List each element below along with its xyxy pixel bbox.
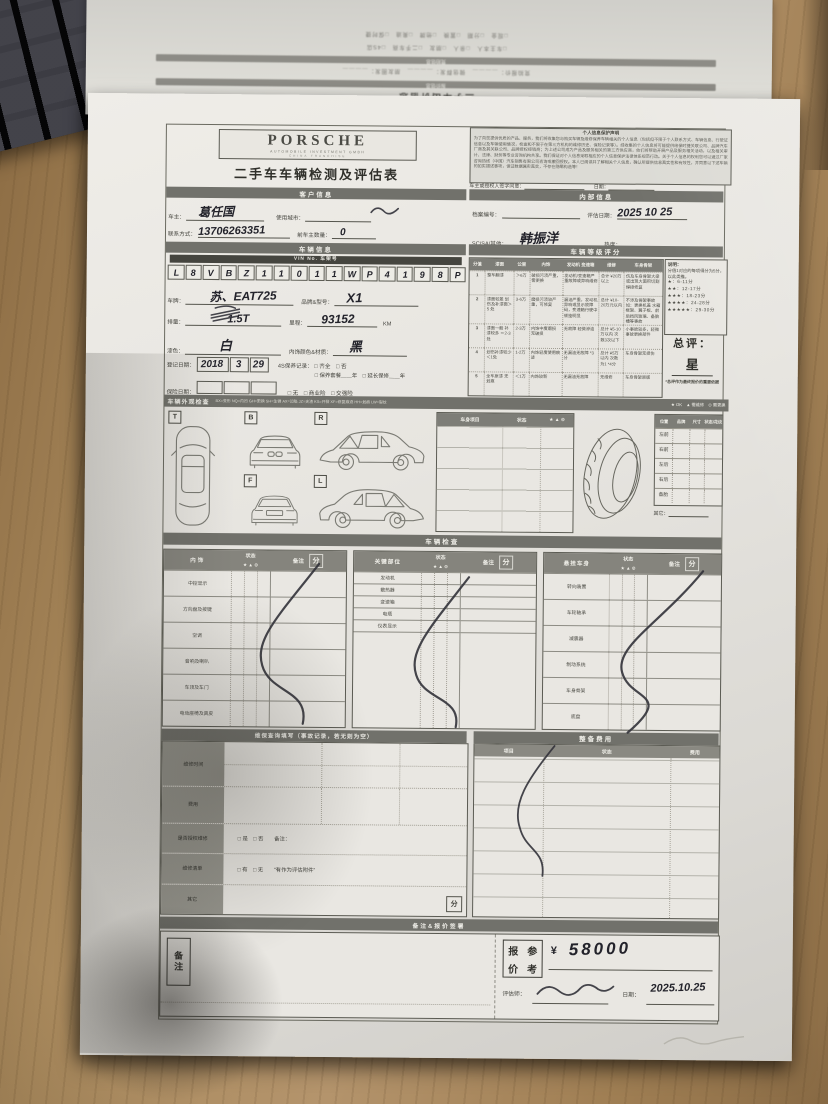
- maint-score-box: 分: [446, 896, 462, 912]
- body-item-table: 车身项目 状态 ★ ▲ ⊙: [435, 412, 574, 533]
- note-cell: [646, 601, 721, 627]
- rating-rows: 1 整车翻漆 ＞6万 破损污渍严重，需更换 发动机/变速箱严重故障或异响维修 总…: [469, 270, 663, 397]
- rating-cell: 2: [469, 294, 485, 323]
- vin-char: 8: [191, 267, 196, 277]
- check3-note-label: 备注: [669, 560, 680, 568]
- rating-cell: 车身骨架无损伤: [623, 349, 662, 373]
- check2-status-label: 状态: [421, 552, 459, 562]
- recondition-grid: [473, 756, 719, 918]
- rating-row: 3 漆面一般 补漆较多 ＝2-3处 2-3万 内饰中度磨损 无破损 无故障 轻微…: [469, 323, 662, 349]
- maint-options-2: □ 保养套餐＿＿年 □ 延长保修＿＿年: [315, 371, 465, 380]
- tire-row: 右前: [655, 443, 722, 459]
- check-item-label: 车轮轴承: [544, 600, 610, 626]
- status-star-cell: [609, 652, 622, 677]
- brand-name: PORSCHE: [220, 132, 416, 151]
- status-circle-cell: [256, 597, 269, 622]
- note-cell: [269, 650, 346, 676]
- mileage-value: 93152: [321, 312, 355, 327]
- exterior-legend: BX=变形 NQ=内凹 GH=更换 SH=生锈 AX=凹陷 JZ=夹渣 KS=开…: [216, 398, 387, 405]
- rating-cell: 内饰中度磨损 无破损: [529, 324, 562, 348]
- check-row: 车身骨架: [543, 677, 720, 705]
- tire-icon: [575, 418, 652, 531]
- check-table-keyparts: 关键部位 状态 ★ ▲ ⊙ 备注 分 发动机: [352, 550, 538, 730]
- rating-cell: 5: [469, 371, 485, 395]
- desk-edge-shadow: [802, 0, 828, 170]
- tire-position: 左前: [655, 429, 673, 443]
- check3-status-label: 状态: [610, 553, 647, 563]
- interior-value: 黑: [349, 336, 363, 355]
- recondition-table: 项目 状态 费用: [472, 743, 721, 919]
- pencil-mark: [660, 1026, 750, 1053]
- mileage-unit: KM: [383, 321, 391, 327]
- prev-owner-value: 0: [340, 227, 346, 238]
- flipped-page-fields: 竞拍报价：＿＿＿＿ 微信群发：＿＿＿＿ 朋友圈发：＿＿＿＿: [126, 65, 746, 79]
- rating-cell: 磨损污渍较严重，可修复: [529, 295, 562, 325]
- status-triangle-cell: [621, 705, 634, 730]
- tire-position: 备胎: [655, 489, 673, 503]
- check-row: 转向装置: [544, 573, 721, 601]
- overall-label: 总评：: [664, 335, 721, 351]
- footer-date-value: 2025.10.25: [650, 981, 705, 994]
- tire-other-label: 其它：: [654, 511, 669, 517]
- maint-row-cost: 费用: [162, 787, 224, 823]
- check-item-label: 空调: [163, 623, 231, 649]
- quote-char: 考: [527, 960, 537, 975]
- tire-row: 备胎: [655, 488, 722, 504]
- check-row: 方向盘及按键: [164, 596, 346, 624]
- photo-of-inspection-form: 二手车出价信息 报价信息 竞拍报价：＿＿＿＿ 微信群发：＿＿＿＿ 朋友圈发：＿＿…: [0, 0, 828, 1104]
- file-number-label: 档案编号：: [472, 212, 500, 218]
- status-circle-cell: [255, 701, 268, 726]
- section-internal-info: 内部信息: [469, 189, 723, 202]
- reg-month: 3: [236, 359, 242, 370]
- vin-header: VIN No. 车架号: [170, 255, 462, 266]
- tire-brand-cell: [672, 459, 689, 473]
- status-triangle-cell: [434, 585, 447, 596]
- maint-row-other: 其它: [161, 884, 223, 914]
- maint-row-time: 维修时间: [162, 742, 224, 787]
- city-label: 使用城市：: [276, 216, 304, 222]
- status-triangle-cell: [244, 597, 257, 622]
- check3-rows: 转向装置 车轮轴承: [543, 573, 721, 731]
- status-triangle-cell: [243, 649, 256, 674]
- prev-owner-label: 前车主数量：: [297, 233, 331, 239]
- interior-label: 内饰颜色&材质：: [289, 350, 332, 356]
- status-star-cell: [421, 597, 434, 608]
- rating-cell: 总计 ¥5万以内 次数为1 *4分: [598, 348, 623, 372]
- check1-rows: 中控显示 方向盘及按键: [163, 570, 346, 728]
- model-label: 品牌&型号：: [301, 300, 333, 306]
- vin-char: 4: [384, 269, 389, 279]
- check-row: 车轮轴承: [544, 599, 721, 627]
- check-table-interior: 内饰 状态 ★ ▲ ⊙ 备注 分 中控显示: [162, 549, 348, 729]
- eval-date-value: 2025 10 25: [617, 206, 672, 219]
- rating-cell: 发动机/变速箱严重故障或异响维修: [562, 271, 599, 295]
- overall-value: 星: [672, 351, 713, 376]
- tire-position: 左后: [655, 459, 673, 473]
- rating-cell: 总计 ¥20万以上: [599, 271, 624, 295]
- note-cell: [646, 627, 721, 653]
- vin-char: 9: [420, 269, 425, 279]
- tire-status-cell: [704, 489, 722, 503]
- car-side-view-right-icon: [314, 423, 430, 474]
- status-star-cell: [421, 585, 434, 596]
- check-item-label: 散热器: [354, 584, 421, 596]
- vin-char: L: [173, 267, 179, 277]
- tire-status-cell: [704, 474, 722, 488]
- quote-char: 价: [508, 960, 518, 975]
- status-star-cell: [609, 600, 622, 625]
- tire-col-brand: 品牌: [673, 419, 690, 425]
- tire-row: 左前: [655, 428, 722, 444]
- note-cell: [646, 575, 721, 601]
- note-cell: [459, 573, 536, 585]
- check2-rows: 发动机 散热器: [354, 571, 537, 632]
- body-col-status: 状态: [503, 417, 541, 424]
- footer-date-label: 日期：: [622, 990, 639, 999]
- rating-col-repair: 维修: [599, 262, 624, 268]
- status-circle-cell: [256, 675, 269, 700]
- paint-label: 漆色：: [167, 349, 184, 355]
- note-cell: [459, 621, 536, 633]
- status-circle-cell: [257, 571, 270, 596]
- notes-box: 备注: [166, 938, 190, 986]
- eval-date-label: 评估日期：: [587, 213, 615, 219]
- tire-size-cell: [689, 444, 704, 458]
- status-triangle-cell: [621, 653, 634, 678]
- rating-row: 2 漆面较差 划伤及补漆面＞5 处 3-6万 磨损污渍较严重，可修复 漏油严重，…: [469, 294, 662, 325]
- rating-cell: 全车原漆 无划痕: [484, 371, 513, 395]
- check-item-label: 方向盘及按键: [164, 597, 232, 623]
- tire-brand-cell: [672, 474, 689, 488]
- rating-legend-box: 说明： 分值1对应的每项得分为5分，以此类推。 ★：6-11分★★：12-17分…: [664, 259, 728, 336]
- rating-row: 4 划伤补漆较少 ＜1处 1-2万 内饰轻度使用痕迹 无漏油无故障 *3分 总计…: [469, 347, 662, 373]
- vin-char: 1: [279, 268, 284, 278]
- rating-cell: 无故障 轻微渗油: [562, 324, 599, 348]
- section-vehicle-info: 车辆信息: [166, 242, 466, 256]
- body-col-item: 车身项目: [437, 416, 502, 424]
- status-triangle-cell: [434, 609, 447, 620]
- currency-symbol: ¥: [551, 945, 557, 957]
- porsche-logo: PORSCHE AUTOMOBILE INVESTMENT GMBH CHINA…: [219, 129, 417, 161]
- owner-label: 车主：: [168, 215, 185, 221]
- tire-position: 右前: [655, 444, 673, 458]
- notes-underline: [160, 1002, 490, 1006]
- check2-status-icons: ★ ▲ ⊙: [421, 562, 459, 572]
- check1-title: 内饰: [164, 550, 232, 571]
- status-triangle-cell: [243, 623, 256, 648]
- tire-other: 其它：: [654, 508, 721, 518]
- check2-score-box: 分: [499, 556, 513, 570]
- check-row: 车顶及车门: [163, 674, 345, 702]
- rating-cell: 3: [469, 323, 485, 347]
- tire-size-cell: [689, 474, 704, 488]
- check2-title: 关键部位: [354, 551, 422, 572]
- tire-brand-cell: [672, 489, 689, 503]
- vin-char: B: [225, 268, 232, 278]
- vin-char: 1: [261, 268, 266, 278]
- form-page: PORSCHE AUTOMOBILE INVESTMENT GMBH CHINA…: [80, 93, 800, 1061]
- check-row: 音响及喇叭: [163, 648, 345, 676]
- tire-col-size: 尺寸: [689, 419, 704, 425]
- status-circle-cell: [447, 585, 460, 596]
- reg-date-label: 登记日期：: [167, 363, 195, 369]
- check3-score-box: 分: [685, 557, 699, 571]
- maint-label: 4S保养记录：: [278, 364, 313, 370]
- tire-brand-cell: [672, 444, 689, 458]
- rating-cell: 漏油严重，发动机异响或显示故障码，变速箱行驶中顿挫明显: [562, 295, 599, 325]
- check-row: 空调: [163, 622, 345, 650]
- rating-col-engine: 发动机 变速箱: [562, 262, 599, 268]
- status-star-cell: [230, 649, 243, 674]
- check1-status-icons: ★ ▲ ⊙: [231, 560, 269, 570]
- status-star-cell: [231, 597, 244, 622]
- flipped-page-checks2: □现金 □分期 □置换 □他牌 □奥迪 □保时捷: [126, 28, 746, 42]
- status-circle-cell: [256, 649, 269, 674]
- status-star-cell: [231, 623, 244, 648]
- maint-row-list: 维修清单: [161, 854, 223, 884]
- mileage-label: 里程：: [289, 321, 306, 327]
- file-number-line: [502, 210, 580, 220]
- rating-star-scale: ★：6-11分★★：12-17分★★★：18-23分★★★★：24-28分★★★…: [667, 279, 724, 314]
- view-tag-front: B: [244, 411, 257, 424]
- check-row: 底盘: [543, 703, 720, 731]
- status-circle-cell: [256, 623, 269, 648]
- tire-status-cell: [704, 459, 722, 473]
- note-cell: [459, 597, 536, 609]
- section-vehicle-check: 车辆检查: [163, 533, 721, 550]
- rating-cell: 无漏油无故障 *3分: [561, 348, 598, 372]
- rating-cell: ＜1万: [513, 372, 529, 396]
- displacement-label: 排量：: [167, 320, 184, 326]
- rating-cell: 小事故较多，轻微事故更换部件: [623, 325, 662, 349]
- rating-table: 分值 漆面 公里 内饰 发动机 变速箱 维修 车身骨架 1 整车翻漆 ＞6万: [468, 257, 664, 398]
- check3-title: 悬挂车身: [544, 553, 610, 574]
- footer-divider: [494, 934, 496, 1018]
- maint-auth-options: □ 是 □ 否 备注：: [224, 824, 467, 856]
- tire-row: 左后: [655, 458, 722, 474]
- rating-cell: 不涉及骨架事故如：更换机盖 水箱框架、翼子板、前后挡风玻璃、备胎槽等事故: [624, 296, 663, 326]
- rating-row: 5 全车原漆 无划痕 ＜1万 内饰较新 无漏油无故障 无维修 车身骨架原版: [469, 371, 662, 397]
- tire-size-cell: [689, 429, 704, 443]
- city-value-line: [306, 213, 372, 223]
- check1-status-label: 状态: [231, 550, 269, 560]
- rating-cell: 车身骨架原版: [623, 373, 662, 397]
- customer-row-2: 联系方式： 13706263351 前车主数量： 0: [168, 225, 466, 241]
- star-scale-line: ★★★★★：29-30分: [667, 307, 724, 314]
- maintenance-table: 维修时间 费用 是否授权维修 □ 是 □ 否 备: [160, 741, 469, 918]
- recon-col-cost: 费用: [670, 749, 719, 756]
- quote-reference-box: 报 参 价 考: [503, 940, 543, 978]
- rating-col-interior: 内饰: [530, 262, 563, 268]
- status-star-cell: [231, 571, 244, 596]
- insurance-box-2: [223, 381, 249, 394]
- car-front-view-icon: [242, 424, 308, 471]
- check-item-label: 发动机: [354, 572, 421, 584]
- check-row: 制动系统: [543, 651, 720, 679]
- rating-cell: 2-3万: [513, 324, 529, 348]
- car-top-view-icon: [167, 424, 218, 528]
- reg-day: 29: [253, 359, 264, 370]
- overall-footnote: *总评作为最终报价的重要依据: [664, 379, 721, 385]
- note-cell: [268, 676, 345, 702]
- vin-boxes: L8VBZ11011WP4198P: [168, 265, 466, 283]
- form-title: 二手车车辆检测及评估表: [166, 163, 466, 185]
- status-circle-cell: [634, 575, 647, 600]
- status-star-cell: [230, 675, 243, 700]
- view-tag-top: T: [168, 411, 181, 424]
- model-value: X1: [346, 290, 362, 305]
- inspection-form: PORSCHE AUTOMOBILE INVESTMENT GMBH CHINA…: [158, 124, 726, 1025]
- check1-note-label: 备注: [293, 557, 304, 565]
- tire-brand-cell: [673, 429, 690, 443]
- status-circle-cell: [633, 653, 646, 678]
- rating-cell: 破损污渍严重，需更换: [529, 271, 562, 295]
- rating-cell: 4: [469, 347, 485, 371]
- car-rear-view-icon: [241, 485, 307, 528]
- check1-score-box: 分: [309, 554, 323, 568]
- rating-cell: 3-6万: [514, 295, 530, 324]
- vehicle-row-disp: 排量： 1.5T 里程： 93152 KM: [167, 311, 465, 329]
- tire-status-cell: [704, 429, 722, 443]
- price-value: 58000: [569, 939, 632, 961]
- rating-col-paint: 漆面: [485, 261, 514, 267]
- plate-label: 车牌：: [167, 299, 184, 305]
- check2-empty-row: [353, 631, 536, 729]
- maint-list-options: □ 有 □ 无 “有作为评估附件”: [223, 854, 466, 886]
- rating-col-score: 分值: [470, 261, 485, 267]
- rating-cell: 内饰轻度使用痕迹: [529, 348, 562, 372]
- displacement-value: 1.5T: [227, 313, 249, 326]
- rating-cell: 伤及车身骨架大梁或出现大面积切割焊接修复: [624, 272, 663, 296]
- rating-cell: 总计 ¥10-20万元以内: [598, 295, 623, 324]
- flipped-page-content: 二手车出价信息 报价信息 竞拍报价：＿＿＿＿ 微信群发：＿＿＿＿ 朋友圈发：＿＿…: [126, 0, 747, 107]
- check-item-label: 车身骨架: [543, 678, 609, 704]
- rating-note-text: 分值1对应的每项得分为5分，以此类推。: [668, 268, 725, 280]
- flipped-page-checks1: □车主本人 □亲人 □朋友 □二手车商 □4S店: [126, 41, 746, 55]
- status-star-cell: [421, 573, 434, 584]
- tire-position: 右后: [655, 474, 673, 488]
- vin-char: W: [347, 269, 356, 279]
- contact-value: 13706263351: [197, 224, 265, 238]
- paint-value: 白: [219, 335, 233, 354]
- status-triangle-cell: [621, 627, 634, 652]
- note-cell: [459, 585, 536, 597]
- assessor-underline: [532, 1003, 608, 1005]
- status-triangle-cell: [434, 597, 447, 608]
- note-cell: [459, 609, 536, 621]
- contact-label: 联系方式：: [168, 232, 196, 238]
- tire-status-cell: [704, 444, 722, 458]
- vin-char: 0: [296, 268, 301, 278]
- tire-other-line: [669, 508, 709, 517]
- status-circle-cell: [633, 705, 646, 730]
- status-circle-cell: [447, 573, 460, 584]
- status-triangle-cell: [621, 601, 634, 626]
- tire-size-cell: [689, 489, 704, 503]
- vin-char: Z: [243, 268, 249, 278]
- status-circle-cell: [447, 597, 460, 608]
- status-star-cell: [230, 701, 243, 726]
- check-item-label: 制动系统: [543, 652, 609, 678]
- status-triangle-cell: [621, 679, 634, 704]
- vin-char: P: [454, 270, 460, 280]
- status-triangle-cell: [622, 575, 635, 600]
- status-star-cell: [421, 609, 434, 620]
- status-star-cell: [608, 678, 621, 703]
- footer-panel: 备注 报 参 价 考 ¥ 58000 评估师： 日期： 2025.10.25: [159, 931, 720, 1022]
- vehicle-row-paint: 漆色： 白 内饰颜色&材质： 黑: [167, 335, 465, 358]
- tire-col-position: 位置: [655, 418, 672, 424]
- insurance-box-1: [196, 381, 222, 394]
- status-star-cell: [609, 626, 622, 651]
- rating-cell: 整车翻漆: [485, 270, 514, 294]
- notes-box-label: 备注: [172, 951, 185, 973]
- rating-cell: 无漏油无故障: [561, 372, 598, 396]
- section-rating: 车辆等级评分: [469, 244, 723, 257]
- note-cell: [269, 572, 346, 598]
- rating-cell: 1: [469, 270, 485, 294]
- status-triangle-cell: [434, 621, 447, 632]
- body-col-icons: ★ ▲ ⊙: [541, 418, 574, 423]
- maint-row-auth: 是否授权维修: [162, 823, 224, 853]
- sign-date-line: [609, 181, 655, 190]
- rating-cell: 总计 ¥5-10万以内 次数3次以下: [598, 325, 623, 349]
- quote-char: 报: [508, 942, 518, 957]
- note-cell: [269, 624, 346, 650]
- note-cell: [646, 653, 721, 679]
- customer-row-1: 车主： 葛任国 使用城市：: [168, 203, 466, 224]
- status-circle-cell: [446, 609, 459, 620]
- status-circle-cell: [633, 679, 646, 704]
- tire-size-cell: [689, 459, 704, 473]
- vin-char: 1: [332, 269, 337, 279]
- car-side-view-left-icon: [313, 481, 429, 532]
- status-circle-cell: [634, 601, 647, 626]
- status-star-cell: [609, 574, 622, 599]
- tire-col-status: 状态/花纹: [704, 419, 722, 425]
- status-triangle-cell: [434, 573, 447, 584]
- tire-table: 位置 品牌 尺寸 状态/花纹 左前: [654, 414, 724, 507]
- overall-rating: 总评： 星 *总评作为最终报价的重要依据: [664, 335, 722, 395]
- form-header-left: PORSCHE AUTOMOBILE INVESTMENT GMBH CHINA…: [166, 125, 467, 188]
- check-item-label: 电瓶: [354, 608, 421, 620]
- rating-cell: 漆面较差 划伤及补漆面＞5 处: [485, 294, 514, 324]
- assessor-label: 评估师：: [502, 989, 525, 998]
- status-circle-cell: [446, 621, 459, 632]
- owner-value: 葛任国: [198, 203, 234, 221]
- status-triangle-cell: [243, 701, 256, 726]
- vin-char: V: [208, 267, 214, 277]
- price-underline: [549, 969, 713, 971]
- note-cell: [269, 598, 346, 624]
- recon-col-item: 项目: [474, 747, 543, 755]
- rating-col-frame: 车身骨架: [624, 263, 663, 269]
- check-item-label: 车顶及车门: [163, 675, 231, 701]
- vin-char: P: [366, 269, 372, 279]
- check-row: 减震器: [543, 625, 720, 653]
- check-row: 中控显示: [164, 570, 346, 598]
- tire-rows: 左前 右前 左后: [655, 428, 723, 504]
- check-table-suspension: 悬挂车身 状态 ★ ▲ ⊙ 备注 分 转向装置: [542, 552, 723, 732]
- privacy-statement: 个人信息保护声明 为了向您提供优质的产品、服务，我们将收集您与购买车辆及维修保养…: [469, 127, 731, 185]
- check-item-label: 变速箱: [354, 596, 421, 608]
- rating-cell: 内饰较新: [528, 372, 561, 396]
- internal-row-1: 档案编号： 评估日期： 2025 10 25: [472, 205, 723, 220]
- status-circle-cell: [634, 627, 647, 652]
- check-item-label: 中控显示: [164, 571, 232, 597]
- check-item-label: 仪表显示: [354, 620, 421, 632]
